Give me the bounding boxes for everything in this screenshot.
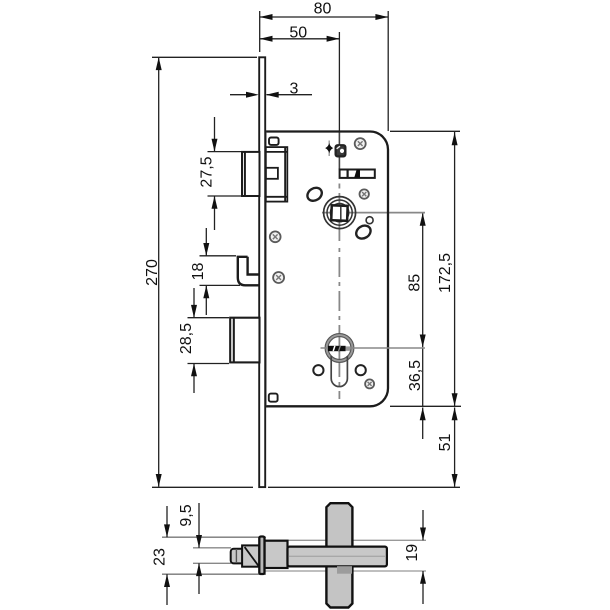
svg-text:9,5: 9,5 [178,504,195,526]
svg-text:27,5: 27,5 [199,156,216,187]
svg-text:18: 18 [190,263,207,281]
svg-text:28,5: 28,5 [178,323,195,354]
svg-text:23: 23 [151,548,168,566]
svg-text:36,5: 36,5 [407,360,424,391]
svg-text:51: 51 [437,434,454,452]
svg-text:270: 270 [144,259,161,286]
svg-text:85: 85 [406,274,423,292]
svg-text:3: 3 [290,81,299,98]
svg-text:80: 80 [314,1,332,18]
svg-text:50: 50 [289,25,307,42]
svg-text:172,5: 172,5 [437,253,454,293]
svg-text:19: 19 [404,544,421,562]
